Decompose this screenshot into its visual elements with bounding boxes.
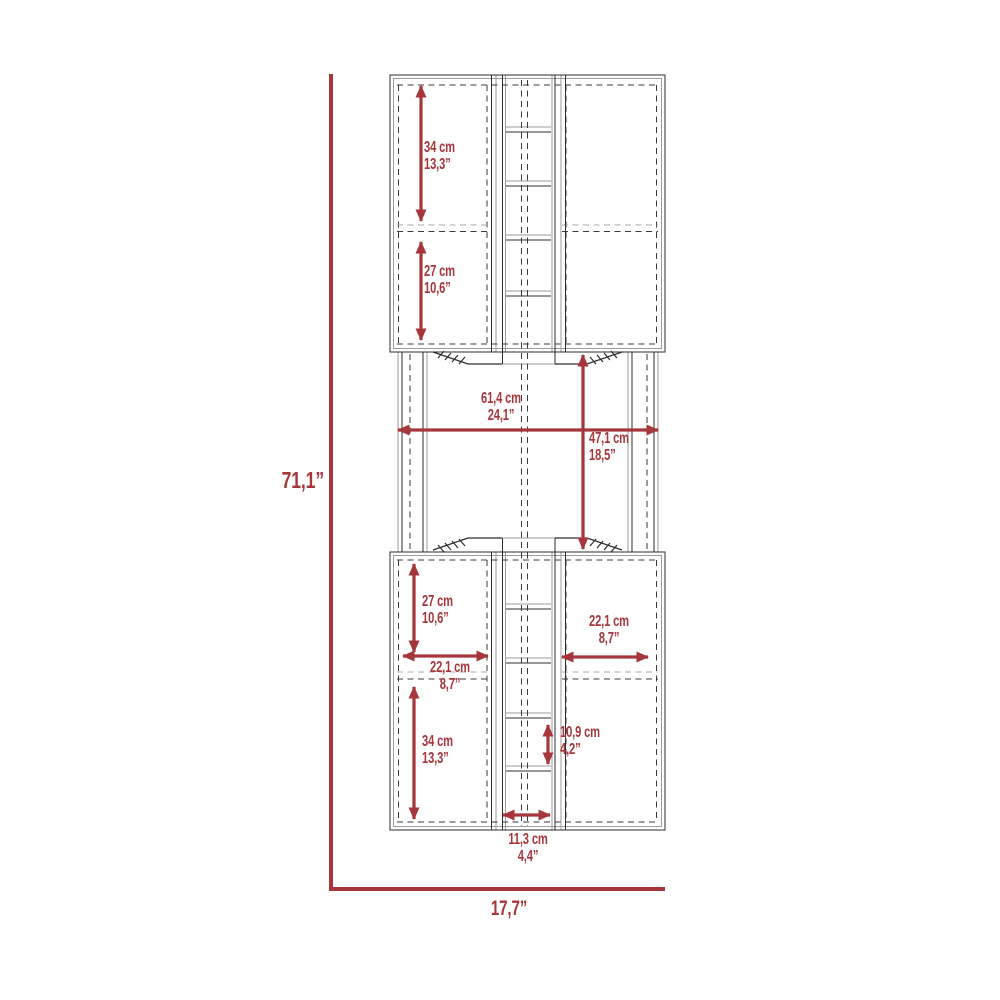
dim-label-lower-left-width: 22,1 cm 8,7” <box>400 659 500 694</box>
dim-label-overall-width: 17,7” <box>459 897 559 921</box>
dim-label-upper-bottom: 27 cm 10,6” <box>424 263 467 298</box>
dim-cm: 27 cm <box>424 263 455 280</box>
dim-cm: 61,4 cm <box>465 390 537 407</box>
dim-label-upper-top: 34 cm 13,3” <box>424 139 467 174</box>
dimension-diagram: 34 cm 13,3” 27 cm 10,6” 61,4 cm 24,1” 47… <box>0 0 1000 1000</box>
dim-inch: 17,7” <box>473 897 545 921</box>
dim-cm: 22,1 cm <box>573 613 645 630</box>
dim-cm: 22,1 cm <box>414 659 486 676</box>
dim-cm: 27 cm <box>422 593 453 610</box>
dim-cm: 11,3 cm <box>492 831 564 848</box>
dim-inch: 24,1” <box>465 407 537 424</box>
dim-label-middle-width: 61,4 cm 24,1” <box>451 390 551 425</box>
dim-inch: 10,6” <box>422 610 453 627</box>
dim-inch: 18,5” <box>589 447 629 464</box>
dim-inch: 8,7” <box>414 676 486 693</box>
dim-label-center-column-width: 11,3 cm 4,4” <box>478 831 578 866</box>
dim-cm: 34 cm <box>422 733 453 750</box>
dim-label-lower-right-width: 22,1 cm 8,7” <box>559 613 659 648</box>
dim-inch: 71,1” <box>261 467 324 493</box>
overall-extent-lines <box>331 74 665 889</box>
dim-label-overall-height: 71,1” <box>240 467 324 493</box>
dim-cm: 47,1 cm <box>589 430 629 447</box>
dim-label-lower-bottom: 34 cm 13,3” <box>422 733 465 768</box>
dim-cm: 34 cm <box>424 139 455 156</box>
dim-inch: 8,7” <box>573 630 645 647</box>
dim-label-lower-top: 27 cm 10,6” <box>422 593 465 628</box>
dim-label-center-cubby-height: 10,9 cm 4,2” <box>560 724 615 759</box>
dim-cm: 10,9 cm <box>560 724 600 741</box>
dim-inch: 4,4” <box>492 848 564 865</box>
dim-inch: 13,3” <box>424 156 455 173</box>
dim-inch: 4,2” <box>560 741 600 758</box>
dim-inch: 13,3” <box>422 750 453 767</box>
dim-label-middle-height: 47,1 cm 18,5” <box>589 430 644 465</box>
dim-inch: 10,6” <box>424 280 455 297</box>
